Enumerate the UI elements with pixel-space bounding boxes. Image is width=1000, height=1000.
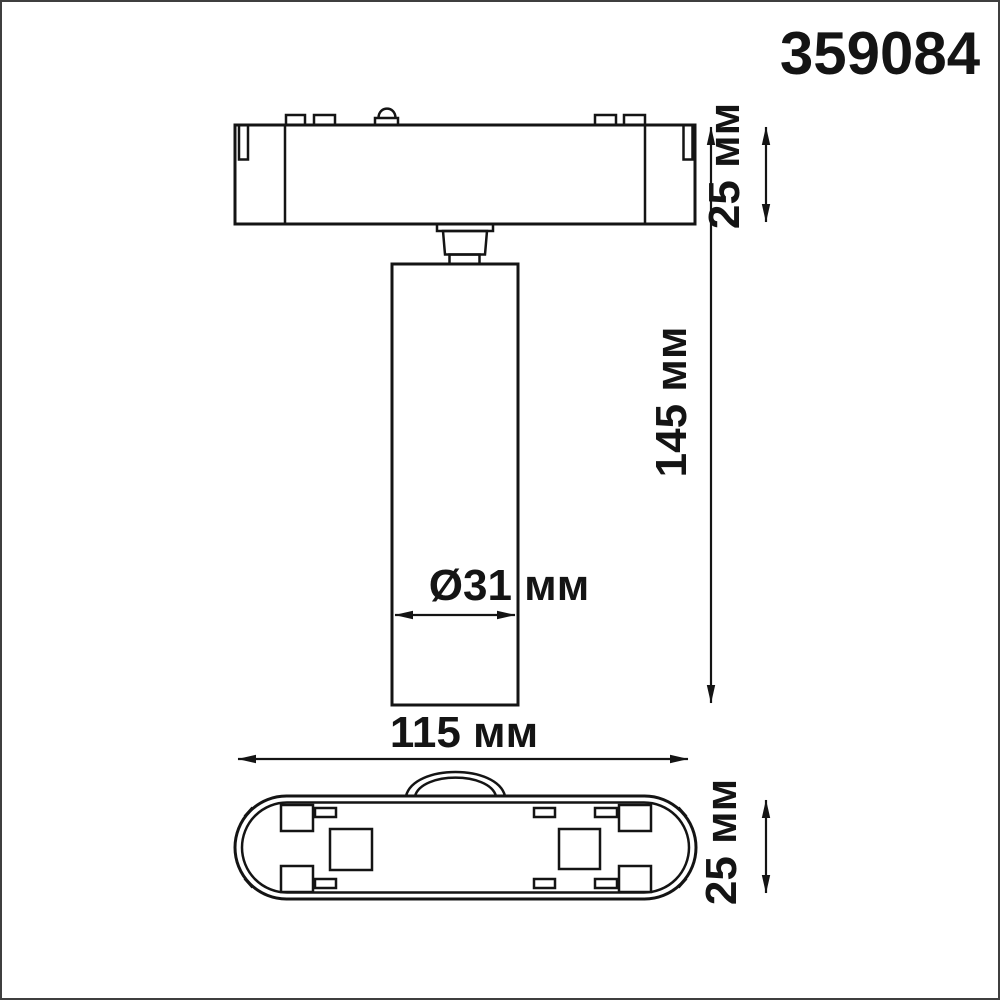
adapter-left-notch — [239, 126, 248, 160]
dome-button-base — [375, 118, 398, 125]
dim-label-base-length: 115 мм — [390, 708, 538, 757]
endcap-step-bottom-left — [245, 879, 253, 888]
technical-drawing-page: 359084 — [0, 0, 1000, 1000]
slot-bottom-right-2 — [595, 879, 617, 888]
endcap-step-top-left — [245, 808, 253, 817]
slot-top-right-2 — [595, 808, 617, 817]
bump-outer-arc — [406, 772, 505, 796]
corner-pad-bottom-right — [619, 866, 651, 892]
bottom-view — [235, 772, 696, 899]
slot-bottom-left — [315, 879, 336, 888]
slot-top-right-1 — [534, 808, 555, 817]
swivel-block — [443, 231, 487, 255]
magnet-square-right — [559, 829, 600, 869]
dimension-diagram: 359084 — [2, 2, 998, 998]
endcap-step-bottom-right — [679, 879, 687, 888]
bump-inner-arc — [415, 778, 496, 796]
dim-label-overall-height: 145 мм — [647, 327, 696, 478]
adapter-right-notch — [684, 126, 693, 160]
magnet-square-left — [330, 829, 372, 870]
dome-button-arc — [379, 109, 396, 118]
slot-top-left — [315, 808, 336, 817]
track-adapter-body — [235, 125, 695, 224]
corner-pad-bottom-left — [281, 866, 313, 892]
endcap-step-top-right — [679, 808, 687, 817]
corner-pad-top-right — [619, 805, 651, 831]
product-code: 359084 — [780, 20, 981, 87]
dim-label-mount-height: 25 мм — [700, 103, 749, 229]
lamp-cylinder — [392, 264, 518, 705]
dim-label-spot-diameter: Ø31 мм — [429, 561, 590, 610]
corner-pad-top-left — [281, 805, 313, 831]
slot-bottom-right-1 — [534, 879, 555, 888]
dim-label-base-depth: 25 мм — [697, 779, 746, 905]
